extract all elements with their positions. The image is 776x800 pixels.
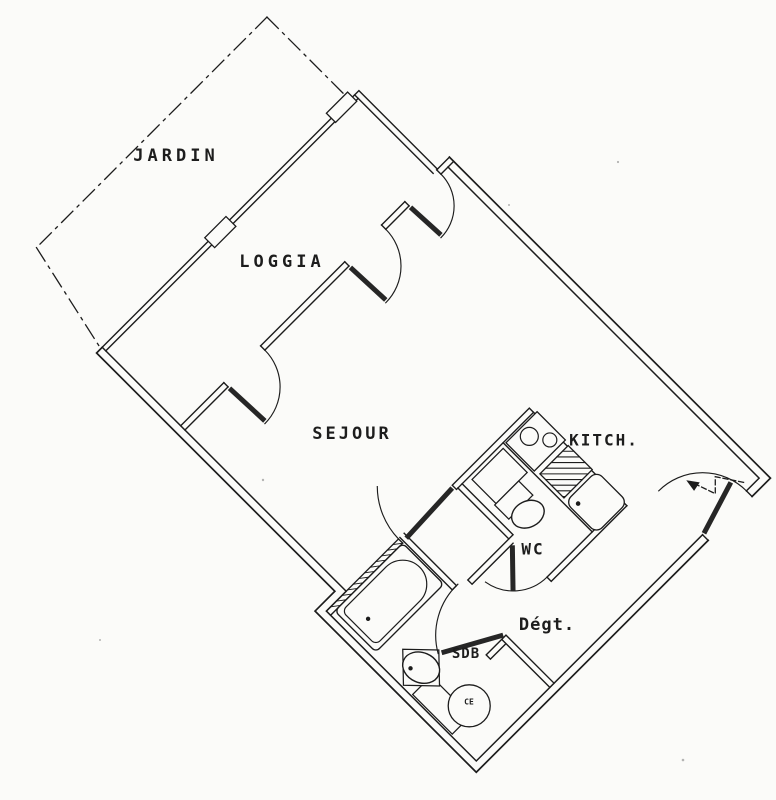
sejour-hall-door-leaf	[404, 488, 454, 538]
entrance-door-arc	[659, 447, 747, 535]
wc-room	[468, 448, 560, 540]
scan-specks	[99, 161, 684, 761]
loggia-door-arc-middle	[349, 229, 423, 303]
room-label-loggia: LOGGIA	[239, 252, 324, 272]
room-label-jardin: JARDIN	[133, 146, 218, 166]
room-label-kitchen: KITCH.	[569, 431, 639, 450]
room-label-sdb: SDB	[452, 646, 480, 662]
nw-glazed-wall	[181, 157, 454, 430]
entrance-jambs	[703, 491, 752, 540]
loggia-corner-pier	[326, 92, 356, 122]
jardin-property-line	[18, 17, 350, 349]
room-label-wc: WC	[521, 540, 544, 559]
room-label-degagement: Dégt.	[519, 615, 575, 635]
entrance-door-leaf	[692, 482, 743, 533]
room-label-water-heater: CE	[464, 698, 474, 707]
room-label-sejour: SEJOUR	[312, 424, 391, 444]
loggia-door-leaf-south	[230, 387, 265, 422]
loggia-door-leaf-north	[411, 206, 441, 236]
sejour-hall-door-arc	[362, 487, 414, 539]
sdb-room	[332, 543, 532, 743]
loggia-door-arc-south	[228, 350, 302, 424]
sdb-door-leaf	[442, 613, 504, 675]
loggia-door-arc-north	[409, 174, 473, 238]
loggia-pillar	[205, 216, 236, 247]
loggia-door-leaf-middle	[350, 266, 385, 301]
floor-plan-svg	[0, 0, 776, 800]
floor-plan-canvas: JARDIN LOGGIA SEJOUR KITCH. WC Dégt. SDB…	[0, 0, 776, 800]
